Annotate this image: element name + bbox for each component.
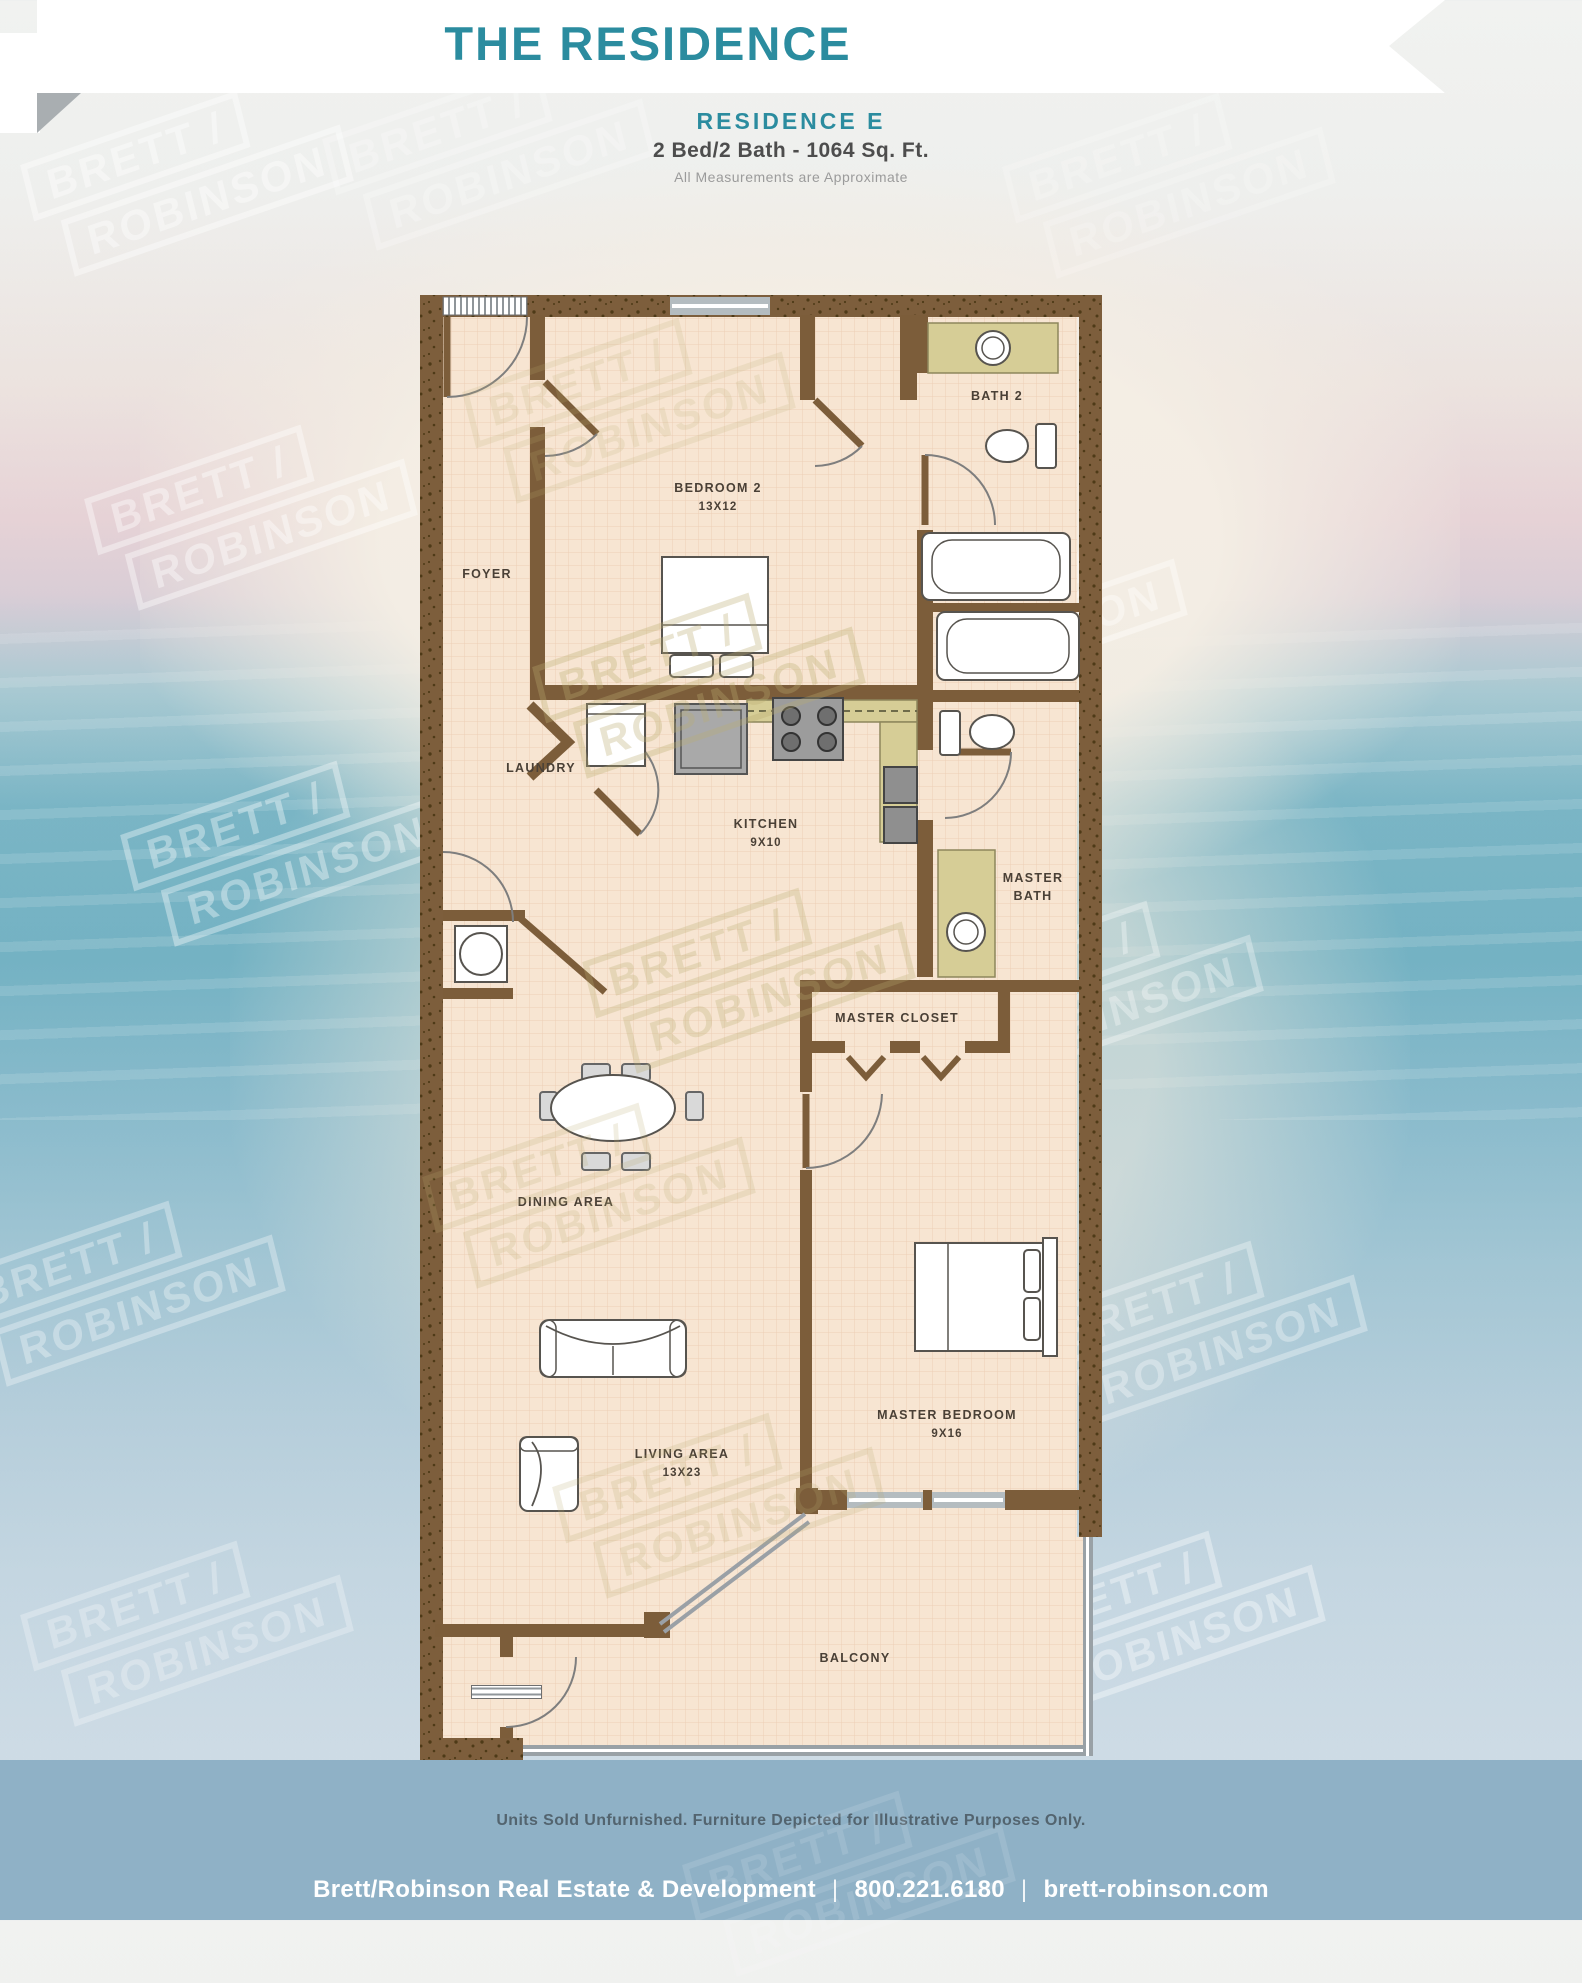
room-label-kitchen: KITCHEN — [734, 817, 799, 831]
master-bed — [915, 1238, 1057, 1356]
room-label-master-bath-2: BATH — [1014, 889, 1053, 903]
phone-number[interactable]: 800.221.6180 — [854, 1876, 1004, 1903]
sofa — [540, 1320, 686, 1377]
armchair — [520, 1437, 578, 1511]
footer-contact-line: Brett/Robinson Real Estate & Development… — [0, 1876, 1582, 1904]
floor-plan: FOYER BEDROOM 2 13X12 BATH 2 LAUNDRY KIT… — [400, 280, 1120, 1780]
room-dims-bedroom2: 13X12 — [699, 501, 738, 513]
room-label-balcony: BALCONY — [820, 1651, 891, 1665]
room-label-dining: DINING AREA — [518, 1195, 614, 1209]
room-label-master-bath-1: MASTER — [1003, 871, 1064, 885]
room-label-bedroom2: BEDROOM 2 — [674, 481, 761, 495]
residence-name: RESIDENCE E — [0, 108, 1582, 135]
brand-watermark: BRETT / ROBINSON — [0, 1194, 265, 1383]
disclaimer-text: Units Sold Unfurnished. Furniture Depict… — [0, 1812, 1582, 1830]
room-dims-living: 13X23 — [663, 1467, 702, 1479]
bath2-tub — [922, 533, 1070, 600]
room-dims-master-bedroom: 9X16 — [931, 1428, 962, 1440]
bath2-vanity — [928, 323, 1058, 373]
room-label-living: LIVING AREA — [635, 1447, 729, 1461]
water-heater — [455, 926, 507, 982]
stove — [773, 698, 843, 760]
footer-band: Units Sold Unfurnished. Furniture Depict… — [0, 1760, 1582, 1920]
watermark-text: BRETT / — [20, 1540, 251, 1671]
washer — [587, 704, 645, 766]
brochure-page: BRETT / ROBINSON BRETT / ROBINSON BRETT … — [0, 0, 1582, 1920]
entry-sidelight-window — [443, 297, 527, 315]
measurements-note: All Measurements are Approximate — [0, 169, 1582, 185]
watermark-text: BRETT / — [0, 1200, 183, 1331]
room-label-foyer: FOYER — [462, 567, 512, 581]
room-label-laundry: LAUNDRY — [506, 761, 576, 775]
master-bath-vanity — [938, 850, 995, 977]
residence-specs: 2 Bed/2 Bath - 1064 Sq. Ft. — [0, 139, 1582, 163]
room-label-master-closet: MASTER CLOSET — [835, 1011, 959, 1025]
room-dims-kitchen: 9X10 — [750, 837, 781, 849]
page-title: THE RESIDENCE — [0, 16, 1296, 71]
room-label-master-bedroom: MASTER BEDROOM — [877, 1408, 1017, 1422]
brand-watermark: BRETT / ROBINSON — [18, 1534, 333, 1723]
watermark-text: ROBINSON — [61, 1574, 354, 1727]
window — [670, 297, 770, 315]
footer-separator: | — [1021, 1876, 1028, 1903]
refrigerator — [675, 704, 747, 774]
master-tub — [937, 612, 1079, 680]
room-label-bath2: BATH 2 — [971, 389, 1023, 403]
footer-separator: | — [832, 1876, 839, 1903]
company-name: Brett/Robinson Real Estate & Development — [313, 1876, 816, 1903]
website-link[interactable]: brett-robinson.com — [1043, 1876, 1268, 1903]
